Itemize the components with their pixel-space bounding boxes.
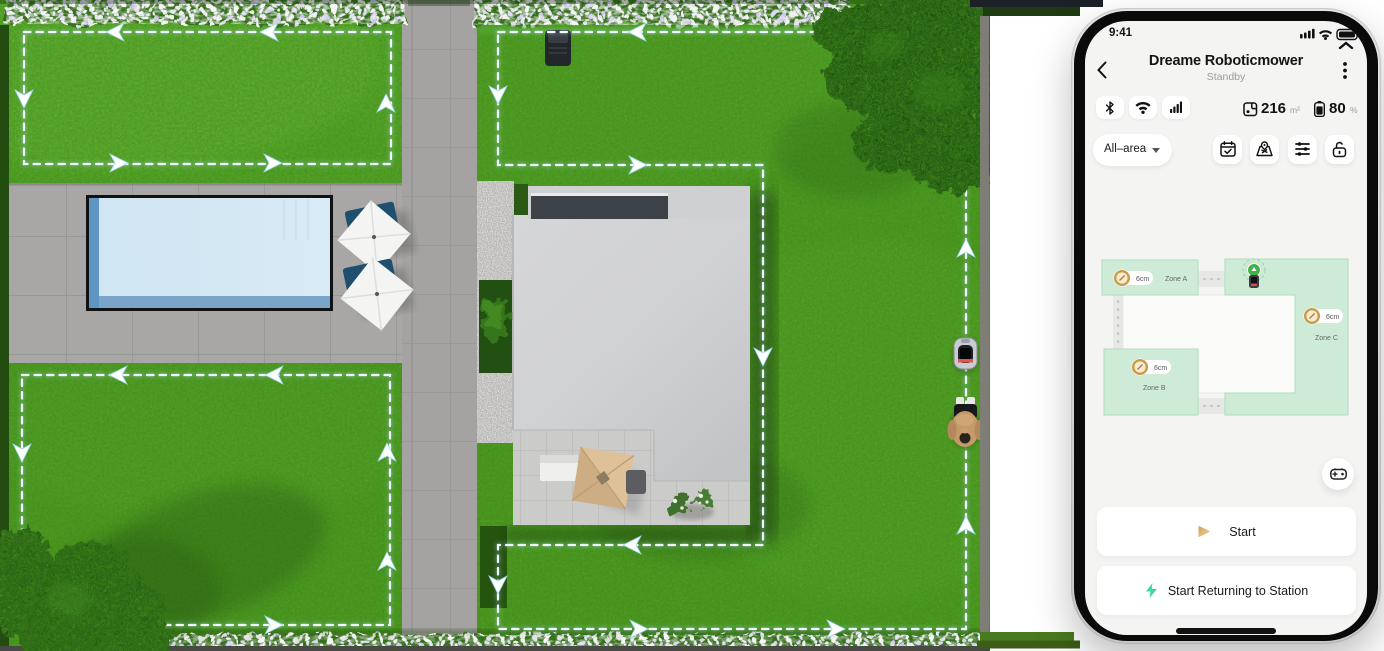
svg-text:6cm: 6cm bbox=[1136, 276, 1149, 283]
svg-text:Zone C: Zone C bbox=[1315, 335, 1338, 342]
svg-text:Zone A: Zone A bbox=[1165, 276, 1188, 283]
svg-text:Zone B: Zone B bbox=[1143, 385, 1166, 392]
svg-text:6cm: 6cm bbox=[1326, 314, 1339, 321]
svg-text:6cm: 6cm bbox=[1154, 365, 1167, 372]
